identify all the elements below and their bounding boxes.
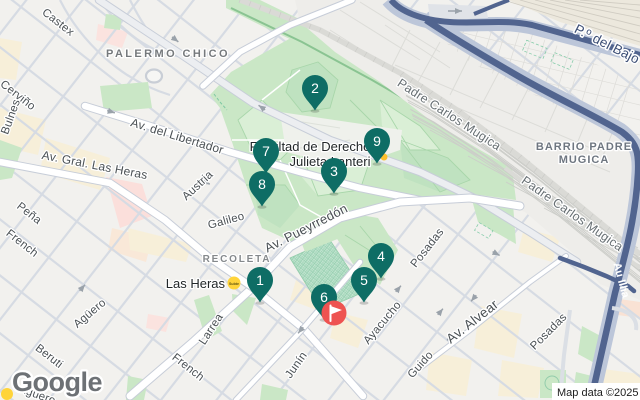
svg-text:1: 1 [256,272,264,288]
svg-text:2: 2 [311,80,319,96]
svg-text:8: 8 [258,176,266,192]
svg-text:3: 3 [330,163,338,179]
svg-text:Las Heras: Las Heras [166,276,226,291]
svg-text:PALERMO CHICO: PALERMO CHICO [106,48,230,60]
svg-text:6: 6 [320,289,328,305]
svg-text:BARRIO PADRE: BARRIO PADRE [536,141,632,153]
svg-text:RECOLETA: RECOLETA [203,254,272,265]
svg-text:5: 5 [360,272,368,288]
svg-text:Google: Google [12,367,102,397]
svg-text:Subte: Subte [229,282,239,286]
svg-text:Map data ©2025: Map data ©2025 [557,387,639,399]
svg-text:7: 7 [262,143,270,159]
svg-text:MUGICA: MUGICA [559,154,610,166]
svg-text:4: 4 [377,248,385,264]
svg-text:9: 9 [373,133,381,149]
